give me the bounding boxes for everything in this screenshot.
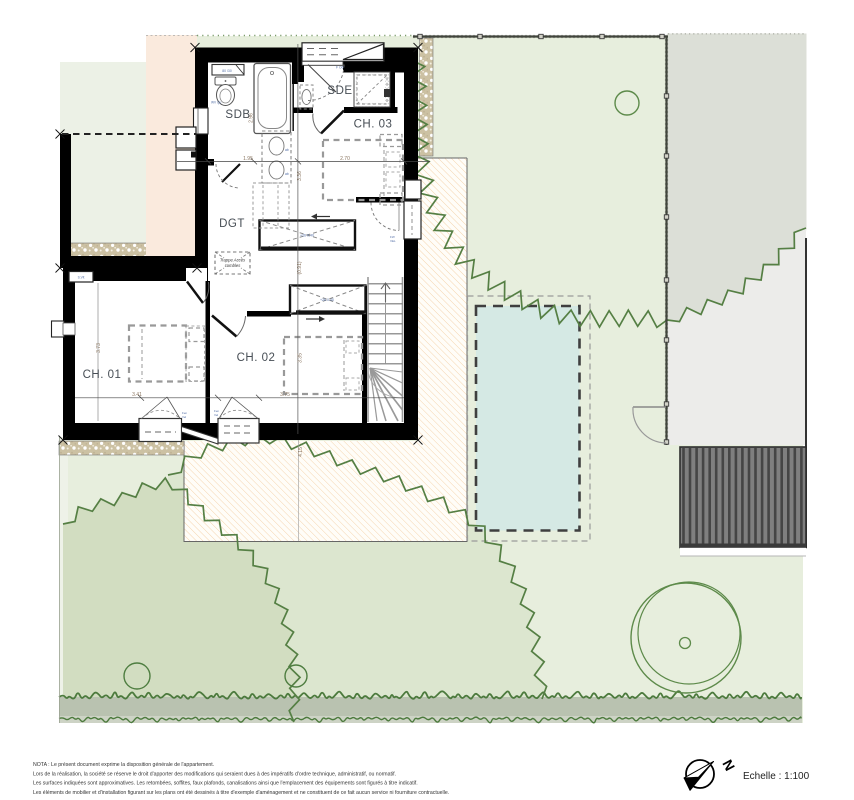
- svg-text:Vel: Vel: [182, 415, 187, 419]
- svg-text:(0.91): (0.91): [297, 261, 303, 274]
- svg-text:3.75: 3.75: [280, 392, 290, 398]
- svg-text:CH. 01: CH. 01: [83, 369, 122, 381]
- svg-text:Echelle : 1:100: Echelle : 1:100: [743, 771, 810, 782]
- svg-text:3.36: 3.36: [297, 171, 303, 181]
- svg-text:WV Qu: WV Qu: [211, 101, 221, 105]
- svg-text:80 /30: 80 /30: [222, 69, 232, 73]
- svg-text:S.Vit: S.Vit: [78, 276, 85, 280]
- svg-text:4.15: 4.15: [298, 447, 304, 457]
- svg-text:F O6: F O6: [336, 66, 344, 70]
- svg-text:SDE: SDE: [327, 85, 352, 97]
- svg-text:+26 0.40: +26 0.40: [320, 298, 334, 302]
- svg-text:Trappe Accès: Trappe Accès: [220, 258, 246, 263]
- svg-text:SDB: SDB: [225, 109, 250, 121]
- svg-text:Vel: Vel: [214, 413, 219, 417]
- svg-text:NOTA : Le présent document exp: NOTA : Le présent document exprime la di…: [33, 762, 214, 768]
- svg-text:CH. 02: CH. 02: [237, 352, 276, 364]
- svg-text:VEL: VEL: [390, 239, 396, 243]
- svg-text:CH. 03: CH. 03: [354, 119, 393, 131]
- svg-text:ab: ab: [285, 172, 289, 176]
- svg-text:3.73: 3.73: [96, 343, 102, 353]
- svg-text:Lors de la réalisation, la soc: Lors de la réalisation, la société se ré…: [33, 771, 396, 777]
- svg-text:2.70: 2.70: [340, 156, 350, 162]
- svg-text:DGT: DGT: [219, 218, 245, 230]
- svg-text:Les surfaces indiquées sont ap: Les surfaces indiquées sont approximativ…: [33, 781, 418, 787]
- svg-text:Les éléments de mobilier et d': Les éléments de mobilier et d'installati…: [33, 790, 449, 796]
- svg-text:1.95: 1.95: [243, 156, 253, 162]
- svg-text:combles: combles: [225, 263, 241, 268]
- svg-text:3.35: 3.35: [298, 353, 304, 363]
- svg-text:+26 0.40: +26 0.40: [300, 234, 314, 238]
- svg-text:3.41: 3.41: [132, 392, 142, 398]
- svg-text:ab: ab: [285, 148, 289, 152]
